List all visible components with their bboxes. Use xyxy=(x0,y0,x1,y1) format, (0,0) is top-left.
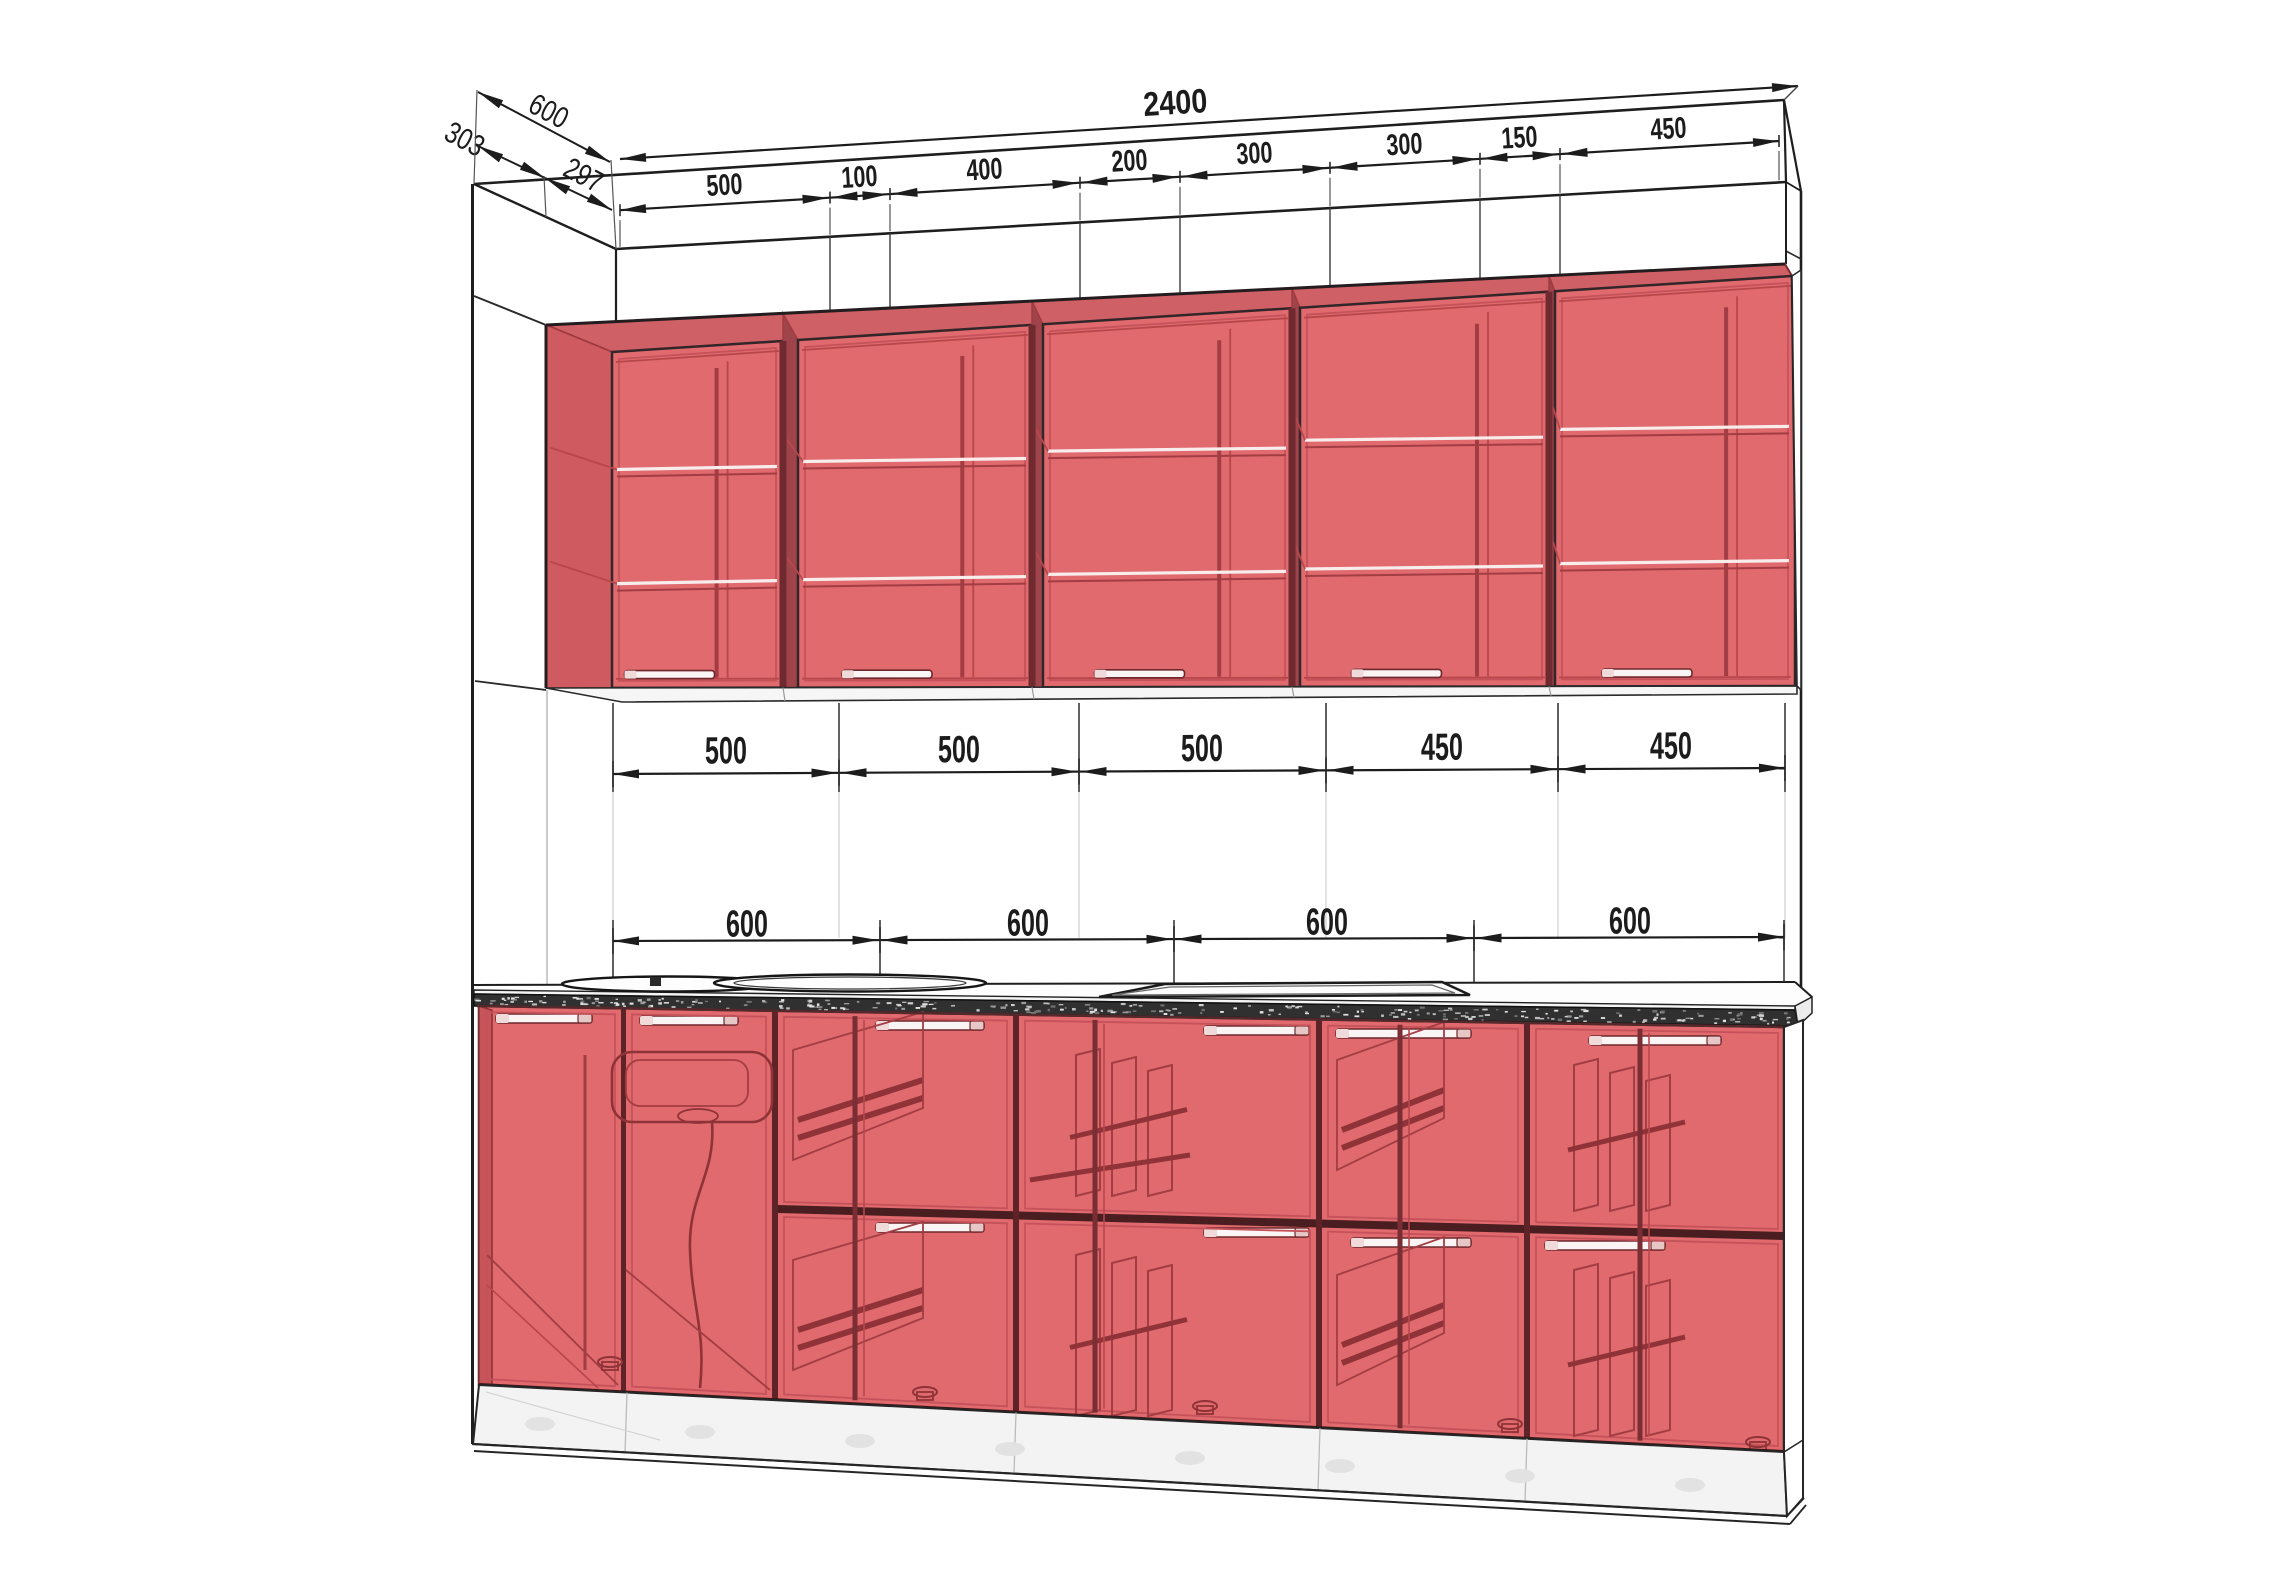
svg-text:500: 500 xyxy=(938,729,980,771)
svg-text:2400: 2400 xyxy=(1142,82,1208,124)
svg-text:300: 300 xyxy=(1385,127,1423,162)
svg-text:600: 600 xyxy=(1306,902,1348,944)
svg-text:150: 150 xyxy=(1500,120,1538,155)
svg-text:450: 450 xyxy=(1650,725,1692,767)
svg-text:200: 200 xyxy=(1110,144,1148,179)
svg-text:600: 600 xyxy=(1609,900,1651,942)
svg-text:300: 300 xyxy=(1235,136,1273,171)
svg-text:600: 600 xyxy=(726,903,768,945)
svg-text:100: 100 xyxy=(840,160,878,195)
svg-text:450: 450 xyxy=(1421,727,1463,769)
svg-text:500: 500 xyxy=(705,168,743,203)
svg-text:500: 500 xyxy=(1181,728,1223,770)
svg-text:400: 400 xyxy=(965,152,1003,187)
svg-text:450: 450 xyxy=(1649,112,1687,147)
svg-text:600: 600 xyxy=(1007,903,1049,945)
svg-text:500: 500 xyxy=(705,730,747,772)
